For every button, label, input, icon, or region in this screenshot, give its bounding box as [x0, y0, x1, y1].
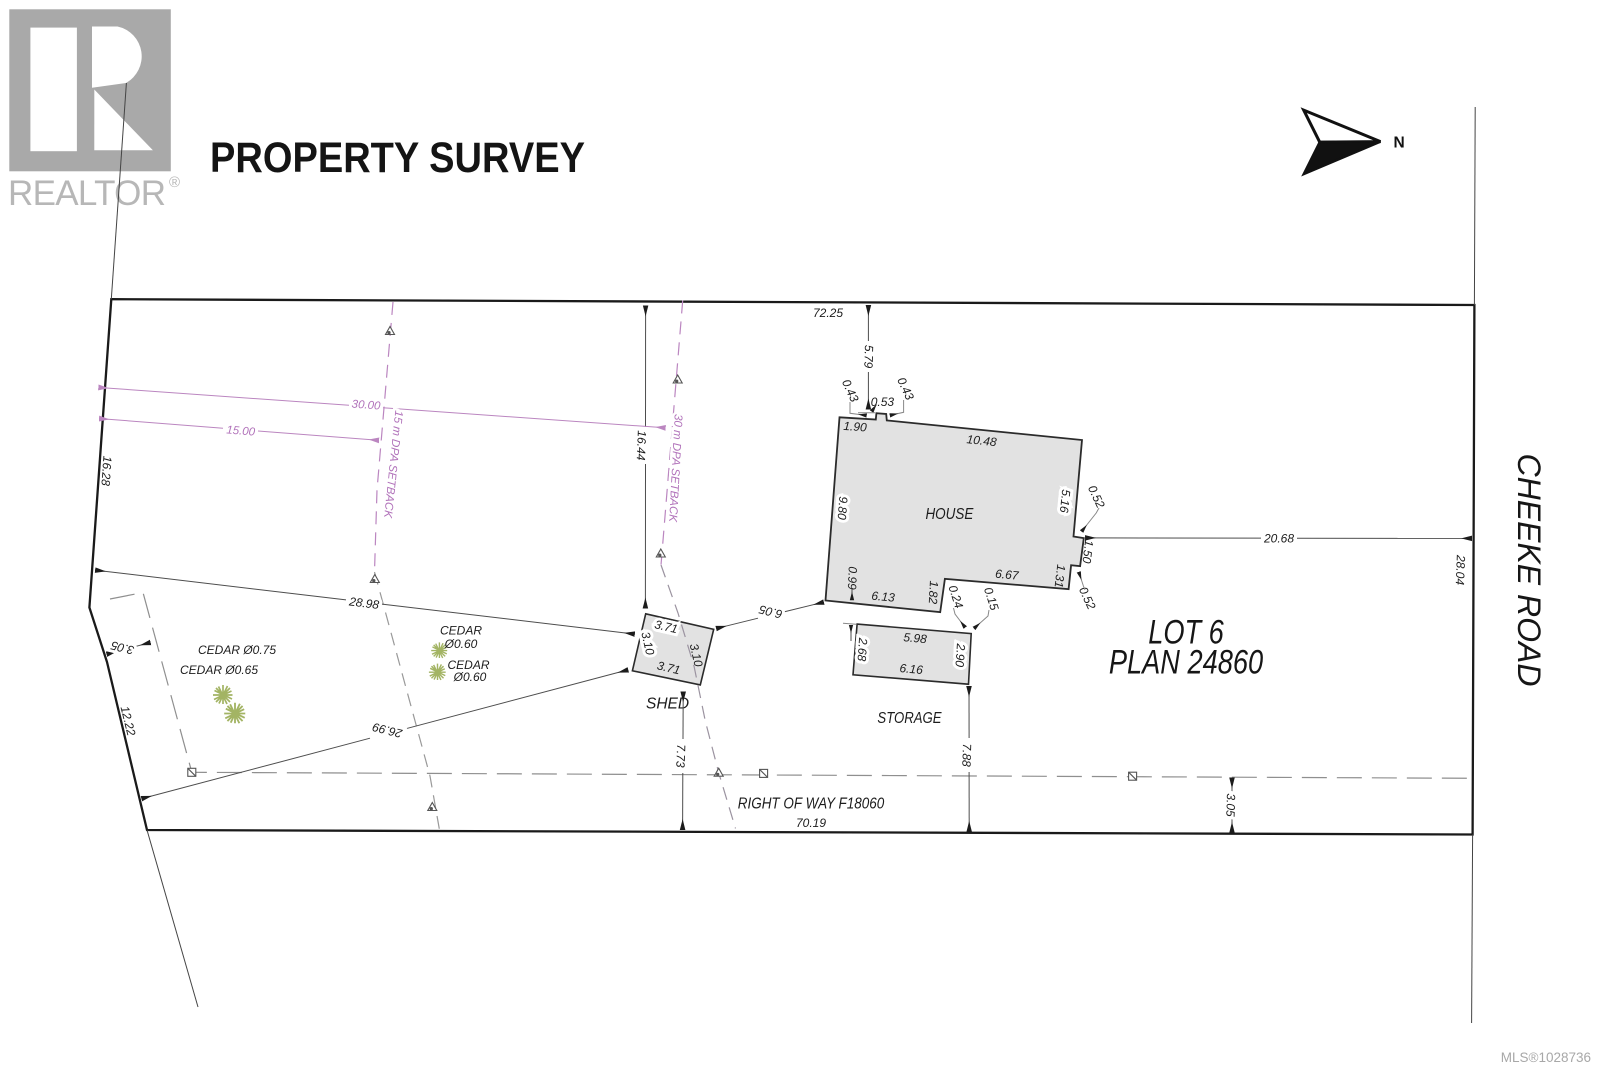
svg-text:5.79: 5.79	[861, 345, 876, 369]
svg-text:CEDAR Ø0.65: CEDAR Ø0.65	[180, 663, 258, 677]
svg-text:2.68: 2.68	[855, 636, 871, 662]
svg-text:72.25: 72.25	[813, 306, 843, 320]
svg-text:®: ®	[169, 174, 180, 191]
svg-text:0.43: 0.43	[839, 377, 862, 404]
svg-text:0.99: 0.99	[845, 566, 860, 590]
svg-text:0.43: 0.43	[894, 375, 917, 402]
svg-text:SHED: SHED	[646, 696, 689, 713]
svg-text:6.16: 6.16	[899, 661, 924, 677]
svg-text:CHEEKE ROAD: CHEEKE ROAD	[1511, 454, 1547, 687]
svg-text:0.24: 0.24	[946, 583, 967, 610]
svg-text:16.28: 16.28	[98, 455, 114, 486]
svg-text:6.67: 6.67	[995, 567, 1021, 583]
svg-text:28.98: 28.98	[347, 594, 380, 612]
svg-text:1.82: 1.82	[926, 580, 941, 604]
svg-text:0.15: 0.15	[981, 585, 1002, 612]
svg-text:2.90: 2.90	[952, 642, 968, 668]
svg-text:5.98: 5.98	[903, 630, 928, 646]
svg-text:STORAGE: STORAGE	[877, 710, 942, 727]
svg-text:20.68: 20.68	[1263, 532, 1294, 546]
svg-text:16.44: 16.44	[634, 430, 649, 461]
svg-text:15 m DPA SETBACK: 15 m DPA SETBACK	[381, 410, 404, 520]
svg-text:9.80: 9.80	[835, 496, 851, 521]
svg-text:Ø0.60: Ø0.60	[444, 637, 478, 651]
svg-text:PLAN 24860: PLAN 24860	[1109, 643, 1263, 682]
svg-text:0.52: 0.52	[1085, 483, 1108, 510]
svg-text:RIGHT OF WAY F18060: RIGHT OF WAY F18060	[738, 796, 885, 813]
svg-text:15.00: 15.00	[226, 424, 256, 438]
svg-text:26.99: 26.99	[371, 720, 405, 741]
svg-text:6.13: 6.13	[871, 589, 896, 605]
svg-text:N: N	[1394, 135, 1405, 152]
svg-text:1.31: 1.31	[1052, 564, 1069, 589]
svg-text:1.90: 1.90	[843, 419, 868, 435]
svg-text:70.19: 70.19	[796, 816, 826, 830]
svg-text:5.16: 5.16	[1057, 489, 1073, 514]
svg-text:PROPERTY SURVEY: PROPERTY SURVEY	[210, 133, 585, 182]
svg-text:REALTOR: REALTOR	[8, 174, 166, 213]
svg-text:3.05: 3.05	[109, 638, 135, 657]
svg-text:1.50: 1.50	[1079, 539, 1096, 564]
svg-text:0.52: 0.52	[1076, 585, 1099, 612]
svg-text:28.04: 28.04	[1453, 554, 1468, 586]
svg-text:CEDAR Ø0.75: CEDAR Ø0.75	[198, 643, 276, 657]
svg-text:30.00: 30.00	[351, 399, 381, 413]
svg-text:HOUSE: HOUSE	[925, 506, 973, 523]
svg-text:CEDAR: CEDAR	[440, 624, 482, 638]
svg-text:7.73: 7.73	[673, 744, 688, 768]
svg-text:Ø0.60: Ø0.60	[453, 670, 487, 684]
svg-text:3.05: 3.05	[1223, 793, 1238, 817]
svg-text:MLS®1028736: MLS®1028736	[1501, 1050, 1591, 1065]
svg-text:6.05: 6.05	[757, 602, 783, 621]
svg-text:7.88: 7.88	[959, 743, 974, 767]
